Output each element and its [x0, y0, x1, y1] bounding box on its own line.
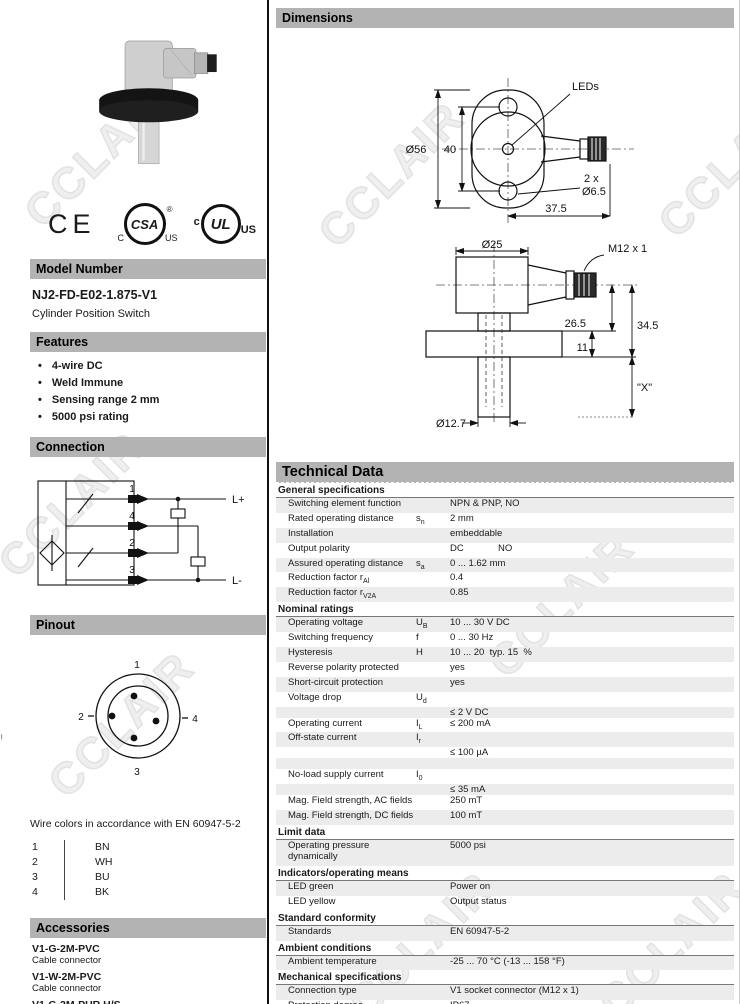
- tech-section: Ambient conditions Ambient temperature -…: [276, 942, 734, 971]
- wire-row: 4 BK: [32, 885, 266, 900]
- tech-row: ≤ 100 µA: [276, 747, 734, 758]
- tech-row-label: Reverse polarity protected: [276, 662, 416, 677]
- svg-text:1: 1: [129, 484, 135, 495]
- tech-row-symbol: IL: [416, 718, 450, 733]
- model-number: NJ2-FD-E02-1.875-V1: [32, 288, 266, 302]
- section-header-technical-data: Technical Data: [276, 462, 734, 483]
- tech-row-label: Hysteresis: [276, 647, 416, 662]
- tech-row-label: Standards: [276, 926, 416, 941]
- tech-row-label: Operating pressure dynamically: [276, 840, 416, 866]
- connection-diagram: 1 4 2 3 L+ L-: [30, 469, 266, 609]
- column-divider: [267, 0, 269, 1004]
- tech-row: ≤ 2 V DC: [276, 707, 734, 718]
- svg-text:40: 40: [444, 144, 456, 156]
- tech-row-symbol: UB: [416, 617, 450, 632]
- accessories-list: V1-G-2M-PVC Cable connector V1-W-2M-PVC …: [30, 943, 266, 1004]
- section-header-features: Features: [30, 332, 266, 352]
- tech-row-value: 5000 psi: [450, 840, 734, 851]
- svg-text:2: 2: [129, 538, 135, 549]
- tech-row-symbol: H: [416, 647, 450, 662]
- tech-row: Connection type V1 socket connector (M12…: [276, 985, 734, 1000]
- tech-row-label: Voltage drop: [276, 692, 416, 707]
- tech-row-value: ≤ 2 V DC: [450, 707, 734, 718]
- tech-row: Reduction factor rV2A 0.85: [276, 587, 734, 602]
- tech-row-value: DC NO: [450, 543, 734, 554]
- tech-row-value: ≤ 100 µA: [450, 747, 734, 758]
- tech-section: Standard conformity Standards EN 60947-5…: [276, 912, 734, 941]
- svg-text:2: 2: [78, 712, 84, 723]
- ul-logo: c UL US: [194, 204, 256, 244]
- tech-row: No-load supply current I0: [276, 769, 734, 784]
- svg-text:3: 3: [134, 767, 140, 778]
- svg-text:26.5: 26.5: [565, 318, 586, 330]
- tech-row-symbol: Ir: [416, 732, 450, 747]
- dimension-drawing-side-view: Ø25 M12 x 1 34.5 26.5 11 "X" Ø12.7: [376, 239, 734, 436]
- tech-rows: LED green Power on LED yellow Output sta…: [276, 881, 734, 911]
- section-header-pinout: Pinout: [30, 615, 266, 635]
- tech-row-value: EN 60947-5-2: [450, 926, 734, 937]
- tech-row-symbol: sn: [416, 513, 450, 528]
- tech-section-title: Ambient conditions: [276, 942, 734, 956]
- tech-row-label: No-load supply current: [276, 769, 416, 784]
- tech-section-title: Indicators/operating means: [276, 867, 734, 881]
- tech-rows: Operating voltage UB 10 ... 30 V DC Swit…: [276, 617, 734, 825]
- tech-row-label: Protection degree: [276, 1000, 416, 1004]
- datasheet-page: CCLAIR CCLAIR CCLAIR CCLAIR CCLAIR CCLAI…: [0, 0, 740, 1004]
- tech-row-label: Short-circuit protection: [276, 677, 416, 692]
- svg-text:Ø6.5: Ø6.5: [582, 186, 606, 198]
- tech-row-label: Rated operating distance: [276, 513, 416, 528]
- tech-section-title: General specifications: [276, 484, 734, 498]
- tech-row-value: embeddable: [450, 528, 734, 539]
- tech-row-value: V1 socket connector (M12 x 1): [450, 985, 734, 996]
- features-list: 4-wire DCWeld ImmuneSensing range 2 mm50…: [36, 360, 266, 423]
- tech-row: Voltage drop Ud: [276, 692, 734, 707]
- tech-row: Switching element function NPN & PNP, NO: [276, 498, 734, 513]
- tech-row-value: Power on: [450, 881, 734, 892]
- csa-logo: CSA ® C US: [124, 203, 166, 245]
- tech-row-value: -25 ... 70 °C (-13 ... 158 °F): [450, 956, 734, 967]
- tech-section: General specifications Switching element…: [276, 484, 734, 602]
- tech-rows: Switching element function NPN & PNP, NO…: [276, 498, 734, 602]
- tech-row: Reduction factor rAl 0.4: [276, 572, 734, 587]
- accessory-item: V1-G-2M-PVC Cable connector: [32, 943, 266, 966]
- tech-row-label: Installation: [276, 528, 416, 543]
- svg-text:11: 11: [577, 342, 588, 354]
- section-header-connection: Connection: [30, 437, 266, 457]
- tech-row-label: Ambient temperature: [276, 956, 416, 971]
- tech-row-label: Operating voltage: [276, 617, 416, 632]
- tech-row: Mag. Field strength, DC fields 100 mT: [276, 810, 734, 825]
- tech-row-value: 0 ... 1.62 mm: [450, 558, 734, 569]
- tech-row-symbol: sa: [416, 558, 450, 573]
- tech-row-label: LED green: [276, 881, 416, 896]
- section-header-dimensions: Dimensions: [276, 8, 734, 28]
- wire-colors-table: 1 BN 2 WH 3 BU 4 BK: [32, 840, 266, 900]
- tech-row-symbol: f: [416, 632, 450, 647]
- tech-row-label: Connection type: [276, 985, 416, 1000]
- tech-row-value: ≤ 200 mA: [450, 718, 734, 729]
- feature-item: Sensing range 2 mm: [36, 394, 266, 406]
- tech-row: Ambient temperature -25 ... 70 °C (-13 .…: [276, 956, 734, 971]
- tech-row-value: NPN & PNP, NO: [450, 498, 734, 509]
- svg-text:3: 3: [129, 565, 135, 576]
- svg-text:LEDs: LEDs: [572, 81, 599, 93]
- tech-rows: Ambient temperature -25 ... 70 °C (-13 .…: [276, 956, 734, 971]
- tech-row-value: 0.85: [450, 587, 734, 598]
- tech-section: Indicators/operating means LED green Pow…: [276, 867, 734, 911]
- svg-text:1: 1: [134, 660, 140, 671]
- tech-row-value: 250 mT: [450, 795, 734, 806]
- svg-text:L-: L-: [232, 575, 242, 587]
- tech-row: Reverse polarity protected yes: [276, 662, 734, 677]
- tech-row: Operating current IL ≤ 200 mA: [276, 718, 734, 733]
- wire-row: 2 WH: [32, 855, 266, 870]
- tech-row-label: Switching element function: [276, 498, 416, 513]
- ce-mark-logo: CE: [48, 209, 96, 240]
- svg-text:Ø25: Ø25: [482, 239, 503, 251]
- section-header-accessories: Accessories: [30, 918, 266, 938]
- pinout-diagram: 1 2 4 3: [48, 657, 266, 784]
- tech-row-value: IP67: [450, 1000, 734, 1004]
- tech-row: Protection degree IP67: [276, 1000, 734, 1004]
- tech-section-title: Limit data: [276, 826, 734, 840]
- dimension-drawing-top-view: Ø56 40 LEDs 2 x Ø6.5 37.5: [376, 76, 734, 233]
- section-header-model-number: Model Number: [30, 259, 266, 279]
- tech-row: Short-circuit protection yes: [276, 677, 734, 692]
- tech-row-label: Off-state current: [276, 732, 416, 747]
- certification-logos: CE CSA ® C US c UL US: [48, 201, 256, 247]
- svg-text:34.5: 34.5: [637, 320, 658, 332]
- tech-rows: Operating pressure dynamically 5000 psi: [276, 840, 734, 866]
- feature-item: 4-wire DC: [36, 360, 266, 372]
- tech-row: Off-state current Ir: [276, 732, 734, 747]
- tech-row-label: LED yellow: [276, 896, 416, 911]
- tech-section-title: Standard conformity: [276, 912, 734, 926]
- tech-row-value: 0 ... 30 Hz: [450, 632, 734, 643]
- tech-row-symbol: I0: [416, 769, 450, 784]
- tech-row-value: Output status: [450, 896, 734, 907]
- wire-row: 3 BU: [32, 870, 266, 885]
- svg-text:Ø12.7: Ø12.7: [436, 418, 466, 430]
- tech-row-label: Assured operating distance: [276, 558, 416, 573]
- product-photo: [60, 8, 266, 193]
- svg-text:2 x: 2 x: [584, 173, 599, 185]
- tech-rows: Standards EN 60947-5-2: [276, 926, 734, 941]
- tech-row-value: yes: [450, 662, 734, 673]
- tech-section: Mechanical specifications Connection typ…: [276, 971, 734, 1004]
- svg-text:L+: L+: [232, 494, 245, 506]
- tech-row: LED yellow Output status: [276, 896, 734, 911]
- tech-row-label: Reduction factor rAl: [276, 572, 416, 587]
- feature-item: 5000 psi rating: [36, 411, 266, 423]
- svg-text:"X": "X": [637, 382, 652, 394]
- tech-row: Mag. Field strength, AC fields 250 mT: [276, 795, 734, 810]
- wire-row: 1 BN: [32, 840, 266, 855]
- tech-row-value: 2 mm: [450, 513, 734, 524]
- tech-row: Standards EN 60947-5-2: [276, 926, 734, 941]
- tech-row: Switching frequency f 0 ... 30 Hz: [276, 632, 734, 647]
- tech-row: Assured operating distance sa 0 ... 1.62…: [276, 558, 734, 573]
- tech-section-title: Mechanical specifications: [276, 971, 734, 985]
- release-date-rail: Release date: 2010-05-14 20:10 Date of i…: [0, 698, 2, 1002]
- svg-text:M12 x 1: M12 x 1: [608, 243, 647, 255]
- svg-text:4: 4: [129, 511, 135, 522]
- tech-row: Hysteresis H 10 ... 20 typ. 15 %: [276, 647, 734, 662]
- tech-row-value: 100 mT: [450, 810, 734, 821]
- tech-row-label: Mag. Field strength, DC fields: [276, 810, 416, 825]
- tech-row-symbol: Ud: [416, 692, 450, 707]
- tech-row: ≤ 35 mA: [276, 784, 734, 795]
- tech-row: Operating voltage UB 10 ... 30 V DC: [276, 617, 734, 632]
- tech-row: LED green Power on: [276, 881, 734, 896]
- svg-text:Ø56: Ø56: [406, 144, 427, 156]
- tech-row-value: 10 ... 30 V DC: [450, 617, 734, 628]
- tech-row: Rated operating distance sn 2 mm: [276, 513, 734, 528]
- model-subtitle: Cylinder Position Switch: [32, 308, 266, 320]
- technical-data-table: General specifications Switching element…: [276, 484, 734, 1004]
- accessory-item: V1-W-2M-PVC Cable connector: [32, 971, 266, 994]
- tech-section: Nominal ratings Operating voltage UB 10 …: [276, 603, 734, 825]
- tech-row-label: Output polarity: [276, 543, 416, 558]
- feature-item: Weld Immune: [36, 377, 266, 389]
- wire-colors-note: Wire colors in accordance with EN 60947-…: [30, 818, 266, 830]
- tech-row-value: 10 ... 20 typ. 15 %: [450, 647, 734, 658]
- tech-row: Installation embeddable: [276, 528, 734, 543]
- tech-row-label: Operating current: [276, 718, 416, 733]
- svg-text:4: 4: [192, 714, 198, 725]
- tech-row-label: Reduction factor rV2A: [276, 587, 416, 602]
- svg-text:37.5: 37.5: [545, 203, 566, 215]
- tech-row: Operating pressure dynamically 5000 psi: [276, 840, 734, 866]
- tech-row-label: Switching frequency: [276, 632, 416, 647]
- accessory-item: V1-G-2M-PUR H/S Cable connector: [32, 999, 266, 1004]
- tech-row: Output polarity DC NO: [276, 543, 734, 558]
- tech-row-value: yes: [450, 677, 734, 688]
- tech-row: [276, 758, 734, 769]
- tech-row-value: 0.4: [450, 572, 734, 583]
- tech-section: Limit data Operating pressure dynamicall…: [276, 826, 734, 866]
- tech-row-label: Mag. Field strength, AC fields: [276, 795, 416, 810]
- tech-row-value: ≤ 35 mA: [450, 784, 734, 795]
- tech-section-title: Nominal ratings: [276, 603, 734, 617]
- tech-rows: Connection type V1 socket connector (M12…: [276, 985, 734, 1004]
